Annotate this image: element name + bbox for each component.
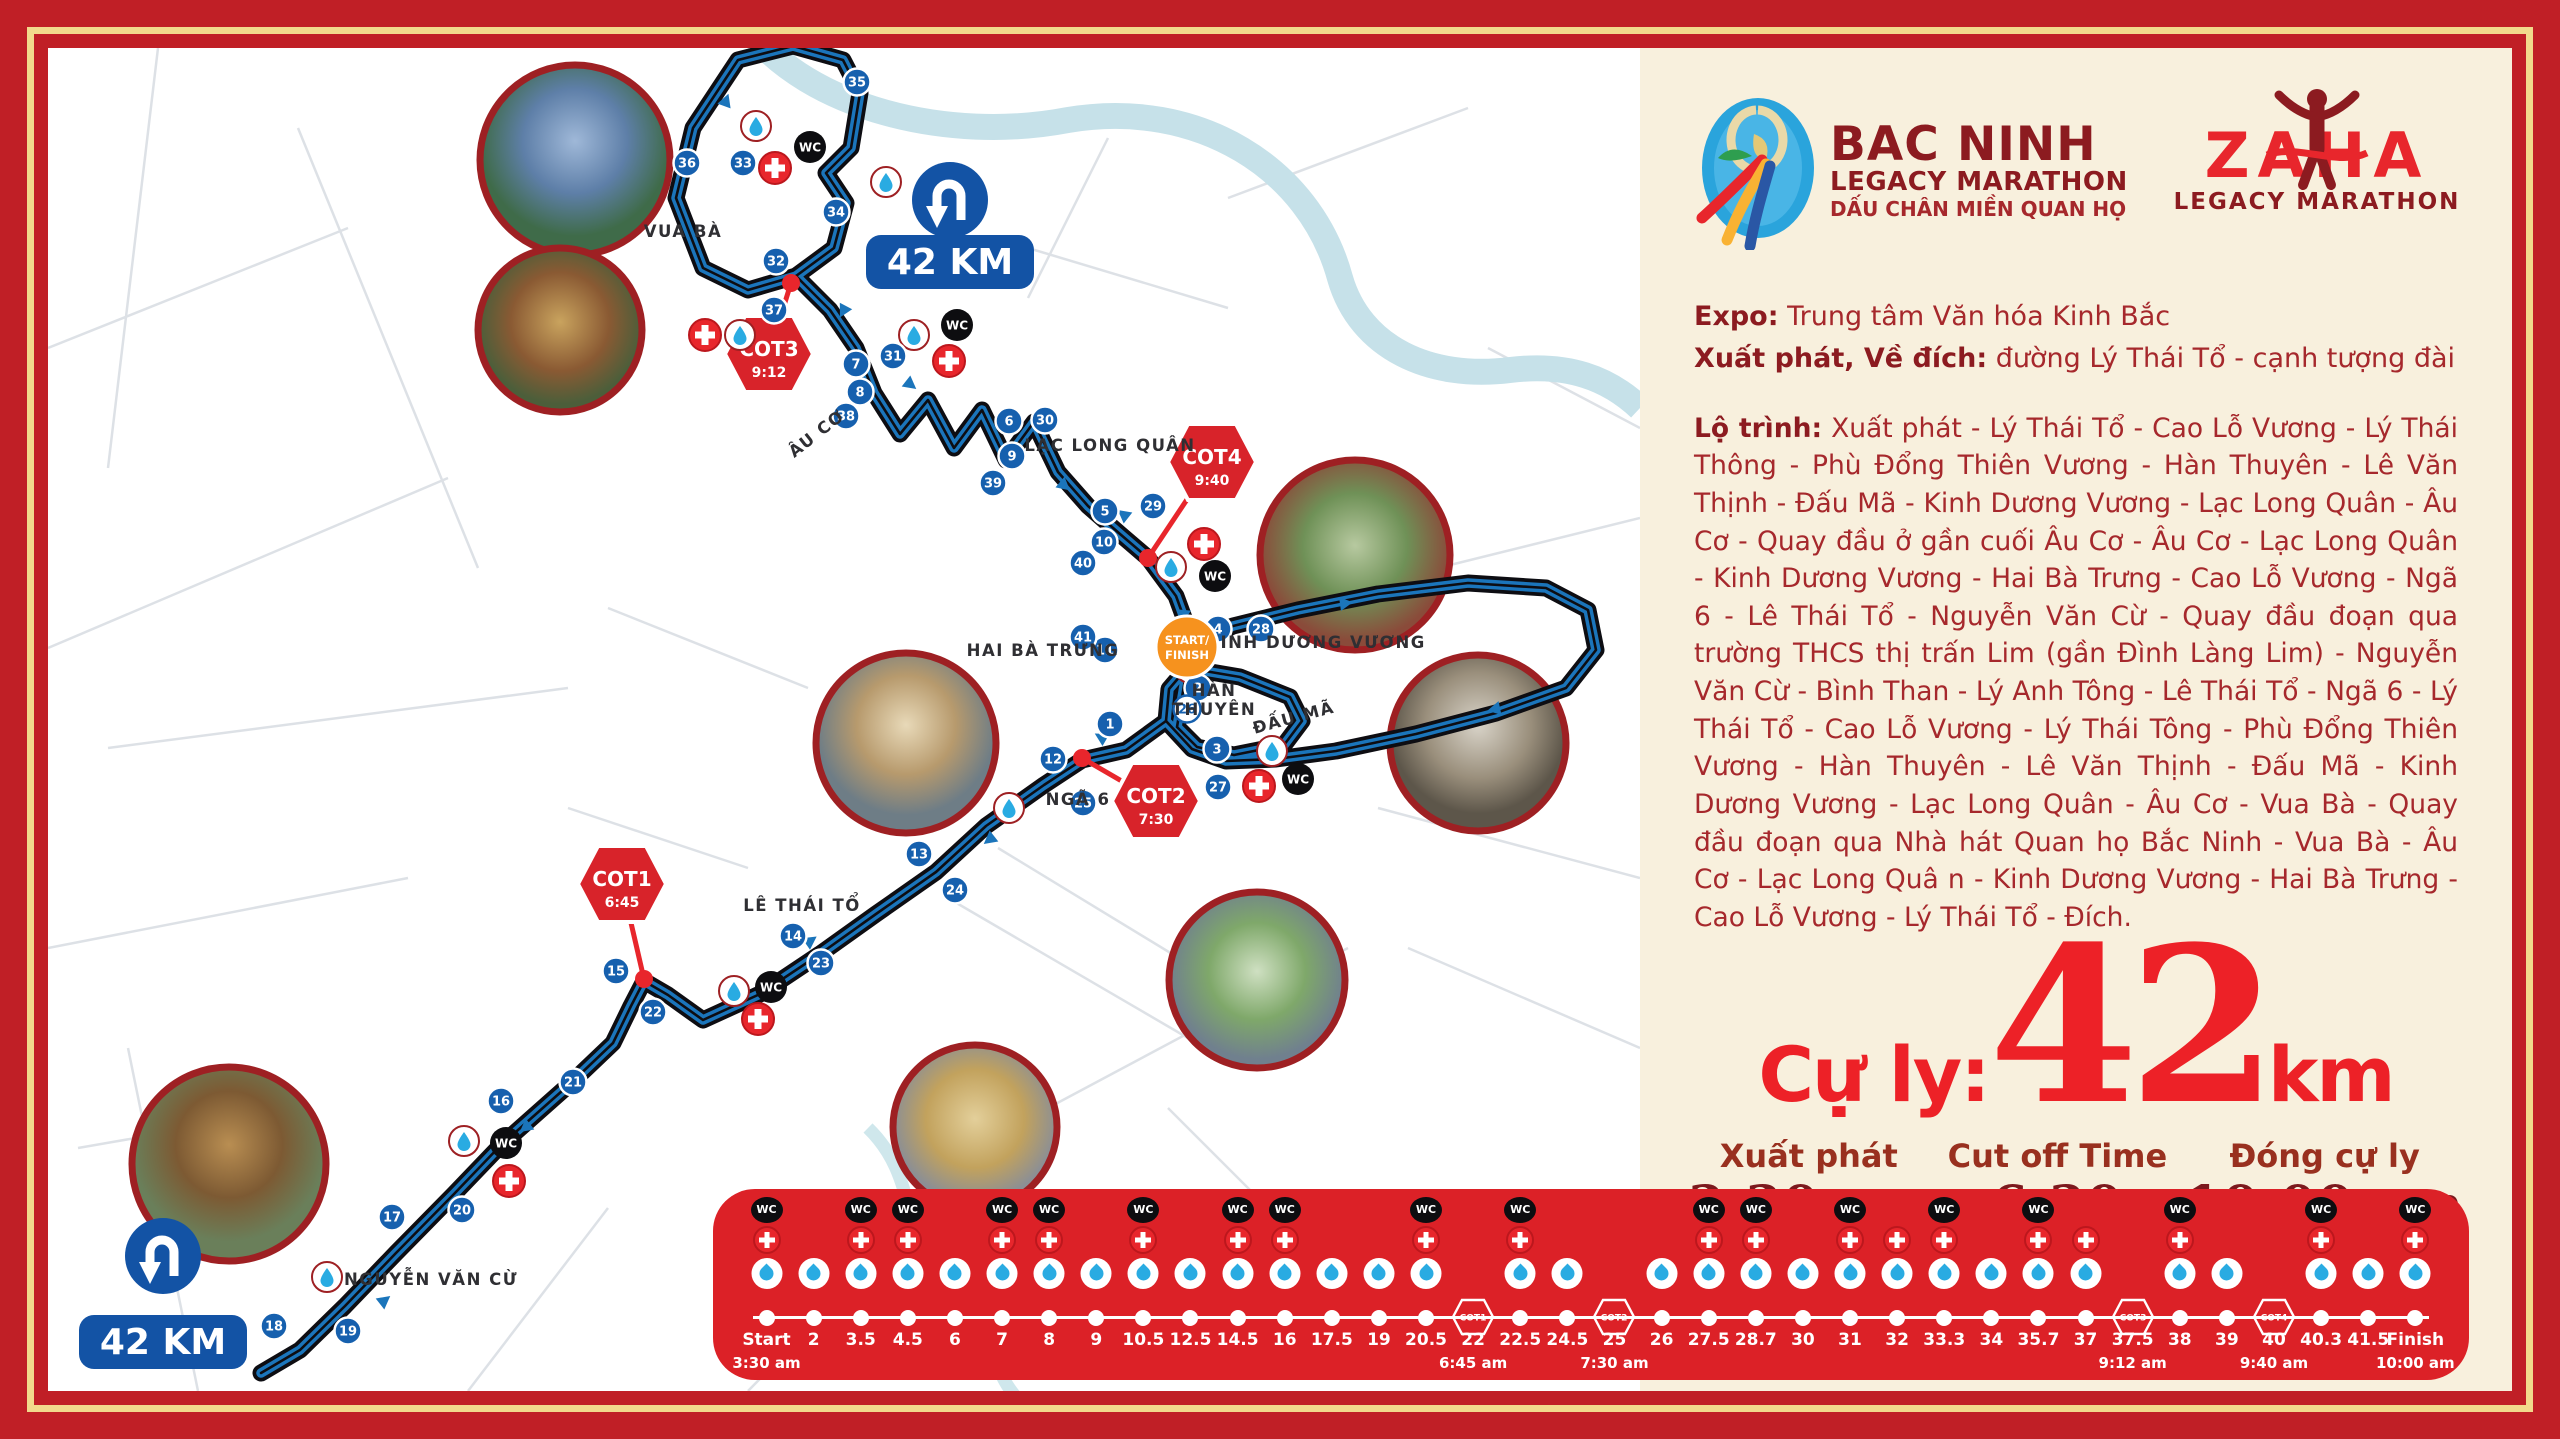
svg-text:COT4: COT4 (2261, 1314, 2288, 1324)
svg-text:WC: WC (1287, 773, 1309, 787)
svg-text:17: 17 (383, 1211, 401, 1226)
svg-text:15: 15 (607, 965, 625, 980)
station-column: WC20.5 (1403, 1189, 1450, 1380)
distance-value: 42 (1989, 942, 2268, 1110)
station-column: WC38 (2156, 1189, 2203, 1380)
svg-text:12: 12 (1044, 753, 1062, 768)
medical-icon (689, 319, 721, 351)
station-dot (1559, 1310, 1575, 1326)
station-column: WC40.3 (2298, 1189, 2345, 1380)
station-dot (1512, 1310, 1528, 1326)
route-description-label: Lộ trình: (1694, 413, 1822, 444)
schedule-label: Đóng cự ly (2185, 1137, 2464, 1175)
station-column: 39 (2203, 1189, 2250, 1380)
start-finish-line: Xuất phát, Về đích: đường Lý Thái Tổ - c… (1694, 338, 2458, 380)
water-icon (2023, 1258, 2054, 1289)
station-column: WCFinish10:00 am (2392, 1189, 2439, 1380)
wc-icon: WC (1269, 1197, 1301, 1223)
water-icon (2070, 1258, 2101, 1289)
street-label: KINH DƯƠNG VƯƠNG (1206, 633, 1426, 652)
timeline-stations: WCStart3:30 am2WC3.5WC4.56WC7WC89WC10.51… (713, 1189, 2469, 1380)
water-icon (1835, 1258, 1866, 1289)
wc-icon: WC (794, 131, 826, 163)
route-description-text: Xuất phát - Lý Thái Tổ - Cao Lỗ Vương - … (1694, 413, 2458, 933)
bac-ninh-subtitle: LEGACY MARATHON (1830, 169, 2128, 196)
medical-icon (2072, 1226, 2100, 1254)
street-label: LẠC LONG QUÂN (1024, 436, 1195, 455)
waypoint-marker: 5 (1092, 498, 1119, 525)
station-column: 26 (1638, 1189, 1685, 1380)
svg-text:WC: WC (1204, 570, 1226, 584)
station-dot (1748, 1310, 1764, 1326)
wc-icon: WC (2022, 1197, 2054, 1223)
medical-icon (988, 1226, 1016, 1254)
waypoint-marker: 30 (1032, 407, 1059, 434)
photo-temple-gate (478, 248, 642, 412)
station-column: WC33.3 (1921, 1189, 1968, 1380)
medical-icon (1883, 1226, 1911, 1254)
medical-icon (759, 152, 791, 184)
wc-icon: WC (755, 971, 787, 1003)
wc-icon: WC (1834, 1197, 1866, 1223)
wc-icon: WC (986, 1197, 1018, 1223)
waypoint-marker: 21 (560, 1069, 587, 1096)
station-column: WC10.5 (1120, 1189, 1167, 1380)
svg-text:9: 9 (1007, 450, 1016, 465)
station-column: COT1226:45 am (1450, 1189, 1497, 1380)
station-dot (1230, 1310, 1246, 1326)
water-icon (1411, 1258, 1442, 1289)
bac-ninh-logo-text: BAC NINH LEGACY MARATHON DẤU CHÂN MIỀN Q… (1830, 120, 2128, 221)
street-label: VUA BÀ (644, 222, 723, 241)
station-dot (806, 1310, 822, 1326)
water-icon (987, 1258, 1018, 1289)
km-badge: 42 KM (866, 235, 1034, 289)
station-dot (994, 1310, 1010, 1326)
wc-icon: WC (1282, 763, 1314, 795)
svg-text:7: 7 (851, 358, 860, 373)
station-column: WC28.7 (1732, 1189, 1779, 1380)
water-icon (751, 1258, 782, 1289)
photo-boulevard (1260, 460, 1450, 650)
cot-sign: COT27:30 (1112, 763, 1200, 839)
svg-text:6: 6 (1004, 415, 1013, 430)
waypoint-marker: 1 (1097, 711, 1124, 738)
event-info: Expo: Trung tâm Văn hóa Kinh Bắc Xuất ph… (1640, 250, 2512, 380)
svg-text:27: 27 (1209, 781, 1227, 796)
svg-text:COT1: COT1 (592, 867, 651, 891)
station-column: WC7 (979, 1189, 1026, 1380)
svg-text:8: 8 (855, 386, 864, 401)
street-label: NGUYỄN VĂN CỪ (344, 1268, 518, 1289)
medical-icon (742, 1003, 774, 1035)
waypoint-marker: 31 (880, 343, 907, 370)
station-column: COT337.59:12 am (2109, 1189, 2156, 1380)
water-icon (1787, 1258, 1818, 1289)
u-turn-icon (912, 162, 988, 238)
svg-text:18: 18 (265, 1320, 283, 1335)
station-column: 2 (790, 1189, 837, 1380)
station-dot (1936, 1310, 1952, 1326)
station-dot (1701, 1310, 1717, 1326)
water-icon (1552, 1258, 1583, 1289)
station-dot (1371, 1310, 1387, 1326)
svg-text:WC: WC (946, 319, 968, 333)
water-icon (719, 976, 749, 1006)
medical-icon (847, 1226, 875, 1254)
medical-icon (1188, 528, 1220, 560)
water-icon (1693, 1258, 1724, 1289)
svg-text:5: 5 (1100, 505, 1109, 520)
water-icon (1976, 1258, 2007, 1289)
station-km: Finish (2375, 1330, 2455, 1350)
waypoint-marker: 18 (261, 1313, 288, 1340)
waypoint-marker: 23 (808, 950, 835, 977)
wc-icon: WC (2399, 1197, 2431, 1223)
medical-icon (1129, 1226, 1157, 1254)
svg-text:20: 20 (453, 1204, 471, 1219)
station-column: 9 (1073, 1189, 1120, 1380)
wc-icon: WC (845, 1197, 877, 1223)
waypoint-marker: 6 (996, 408, 1023, 435)
svg-text:14: 14 (784, 930, 802, 945)
svg-text:WC: WC (760, 981, 782, 995)
medical-icon (753, 1226, 781, 1254)
expo-value: Trung tâm Văn hóa Kinh Bắc (1787, 301, 2170, 332)
station-column: 19 (1355, 1189, 1402, 1380)
schedule-label: Cut off Time (1948, 1137, 2168, 1175)
water-icon (1740, 1258, 1771, 1289)
water-icon (1882, 1258, 1913, 1289)
water-icon (741, 111, 771, 141)
wc-icon: WC (2164, 1197, 2196, 1223)
waypoint-marker: 34 (823, 199, 850, 226)
photo-statue (1390, 655, 1566, 831)
water-icon (1034, 1258, 1065, 1289)
u-turn-icon (125, 1218, 201, 1294)
water-icon (1505, 1258, 1536, 1289)
svg-text:LÊ THÁI TỔ: LÊ THÁI TỔ (743, 893, 861, 915)
start-finish-label: Xuất phát, Về đích: (1694, 343, 1987, 374)
water-icon (1363, 1258, 1394, 1289)
medical-icon (894, 1226, 922, 1254)
waypoint-marker: 39 (980, 470, 1007, 497)
station-column: WC14.5 (1214, 1189, 1261, 1380)
wc-icon: WC (892, 1197, 924, 1223)
water-icon (939, 1258, 970, 1289)
station-column: WC22.5 (1497, 1189, 1544, 1380)
waypoint-marker: 3 (1204, 736, 1231, 763)
wc-icon: WC (1033, 1197, 1065, 1223)
station-column: COT2257:30 am (1591, 1189, 1638, 1380)
svg-text:35: 35 (848, 76, 866, 91)
waypoint-marker: 40 (1070, 550, 1097, 577)
station-column: 41.5 (2345, 1189, 2392, 1380)
svg-text:COT2: COT2 (1126, 784, 1185, 808)
station-dot (1418, 1310, 1434, 1326)
water-icon (994, 793, 1024, 823)
bac-ninh-logo-icon (1692, 90, 1820, 250)
svg-text:13: 13 (910, 848, 928, 863)
water-icon (845, 1258, 876, 1289)
svg-text:COT1: COT1 (1460, 1314, 1487, 1324)
station-dot (2407, 1310, 2423, 1326)
water-icon (892, 1258, 923, 1289)
station-column: WC27.5 (1685, 1189, 1732, 1380)
svg-text:7:30: 7:30 (1139, 812, 1174, 828)
medical-icon (1506, 1226, 1534, 1254)
medical-icon (1271, 1226, 1299, 1254)
svg-text:42 KM: 42 KM (100, 1322, 226, 1363)
medical-icon (1035, 1226, 1063, 1254)
medical-icon (1742, 1226, 1770, 1254)
station-dot (1041, 1310, 1057, 1326)
station-column: WC16 (1261, 1189, 1308, 1380)
waypoint-marker: 8 (847, 379, 874, 406)
station-column: WC35.7 (2015, 1189, 2062, 1380)
station-column: WCStart3:30 am (743, 1189, 790, 1380)
svg-text:VUA BÀ: VUA BÀ (644, 222, 723, 241)
waypoint-marker: 36 (674, 150, 701, 177)
svg-text:WC: WC (495, 1137, 517, 1151)
svg-text:NGUYỄN VĂN CỪ: NGUYỄN VĂN CỪ (344, 1268, 518, 1289)
svg-text:COT2: COT2 (1601, 1314, 1628, 1324)
wc-icon: WC (941, 309, 973, 341)
svg-text:37: 37 (765, 304, 783, 319)
station-dot (2078, 1310, 2094, 1326)
waypoint-marker: 33 (730, 150, 757, 177)
km-badge: 42 KM (79, 1315, 247, 1369)
schedule-label: Xuất phát (1688, 1137, 1930, 1175)
waypoint-marker: 29 (1140, 493, 1167, 520)
water-icon (2211, 1258, 2242, 1289)
svg-text:LẠC LONG QUÂN: LẠC LONG QUÂN (1024, 436, 1195, 455)
station-dot (1088, 1310, 1104, 1326)
wc-icon: WC (1127, 1197, 1159, 1223)
svg-text:19: 19 (339, 1325, 357, 1340)
station-dot (2030, 1310, 2046, 1326)
street-label: LÊ THÁI TỔ (743, 893, 861, 915)
runner-icon (2257, 77, 2377, 197)
station-dot (1795, 1310, 1811, 1326)
photo-stadium (480, 65, 670, 255)
svg-text:NGÃ 6: NGÃ 6 (1046, 790, 1111, 809)
svg-text:16: 16 (492, 1095, 510, 1110)
station-dot (2313, 1310, 2329, 1326)
station-column: WC8 (1026, 1189, 1073, 1380)
station-dot (947, 1310, 963, 1326)
water-icon (1646, 1258, 1677, 1289)
water-icon (449, 1126, 479, 1156)
water-icon (2353, 1258, 2384, 1289)
medical-icon (2024, 1226, 2052, 1254)
wc-icon: WC (2305, 1197, 2337, 1223)
logo-row: BAC NINH LEGACY MARATHON DẤU CHÂN MIỀN Q… (1640, 48, 2512, 250)
svg-text:24: 24 (946, 884, 964, 899)
station-column: 30 (1779, 1189, 1826, 1380)
water-icon (2164, 1258, 2195, 1289)
station-column: 24.5 (1544, 1189, 1591, 1380)
expo-line: Expo: Trung tâm Văn hóa Kinh Bắc (1694, 296, 2458, 338)
waypoint-marker: 35 (844, 69, 871, 96)
wc-icon: WC (1199, 560, 1231, 592)
svg-text:40: 40 (1074, 557, 1092, 572)
svg-text:36: 36 (678, 157, 696, 172)
street-label: ÂU CƠ (785, 406, 848, 461)
svg-text:3: 3 (1212, 743, 1221, 758)
water-icon (899, 320, 929, 350)
distance-label: Cự ly: (1758, 1030, 1988, 1119)
waypoint-marker: 17 (379, 1204, 406, 1231)
wc-icon: WC (1504, 1197, 1536, 1223)
svg-text:9:40: 9:40 (1195, 473, 1230, 489)
svg-text:FINISH: FINISH (1165, 648, 1209, 662)
photo-monument (893, 1045, 1057, 1209)
photo-roundabout (1169, 892, 1345, 1068)
waypoint-marker: 14 (780, 923, 807, 950)
medical-icon (933, 345, 965, 377)
waypoint-marker: 37 (761, 297, 788, 324)
water-icon (1222, 1258, 1253, 1289)
water-icon (1316, 1258, 1347, 1289)
svg-text:10: 10 (1095, 536, 1113, 551)
station-dot (1324, 1310, 1340, 1326)
waypoint-marker: 32 (763, 248, 790, 275)
street-label: HAI BÀ TRƯNG (967, 641, 1120, 660)
station-column: 32 (1874, 1189, 1921, 1380)
distance-display: Cự ly: 42 km (1640, 942, 2512, 1119)
station-dot (1135, 1310, 1151, 1326)
water-icon (2400, 1258, 2431, 1289)
svg-text:22: 22 (644, 1006, 662, 1021)
waypoint-marker: 12 (1040, 746, 1067, 773)
svg-text:29: 29 (1144, 500, 1162, 515)
svg-text:39: 39 (984, 477, 1002, 492)
station-column: WC3.5 (837, 1189, 884, 1380)
station-dot (2172, 1310, 2188, 1326)
bac-ninh-title: BAC NINH (1830, 120, 2128, 169)
waypoint-marker: 13 (906, 841, 933, 868)
water-icon (1269, 1258, 1300, 1289)
route-description: Lộ trình: Xuất phát - Lý Thái Tổ - Cao L… (1640, 380, 2512, 937)
waypoint-marker: 15 (603, 958, 630, 985)
cot-route-dot (1139, 549, 1157, 567)
svg-text:ÂU CƠ: ÂU CƠ (785, 406, 848, 461)
station-dot (1842, 1310, 1858, 1326)
svg-text:31: 31 (884, 350, 902, 365)
svg-text:HAI BÀ TRƯNG: HAI BÀ TRƯNG (967, 641, 1120, 660)
water-icon (1128, 1258, 1159, 1289)
photo-clock-tower (816, 653, 996, 833)
waypoint-marker: 24 (942, 877, 969, 904)
svg-text:34: 34 (827, 206, 845, 221)
medical-icon (1695, 1226, 1723, 1254)
water-icon (1175, 1258, 1206, 1289)
station-dot (1654, 1310, 1670, 1326)
waypoint-marker: 22 (640, 999, 667, 1026)
expo-label: Expo: (1694, 301, 1779, 332)
svg-text:23: 23 (812, 957, 830, 972)
water-icon (1156, 552, 1186, 582)
waypoint-marker: 19 (335, 1318, 362, 1345)
station-column: 17.5 (1308, 1189, 1355, 1380)
water-icon (1257, 736, 1287, 766)
svg-text:21: 21 (564, 1076, 582, 1091)
waypoint-marker: 20 (449, 1197, 476, 1224)
waypoint-marker: 10 (1091, 529, 1118, 556)
street-label: NGÃ 6 (1046, 790, 1111, 809)
zaha-logo: ZAHA LEGACY MARATHON (2172, 125, 2462, 215)
station-dot (1983, 1310, 1999, 1326)
svg-text:HÀN: HÀN (1192, 681, 1237, 700)
waypoint-marker: 27 (1205, 774, 1232, 801)
station-column: WC4.5 (884, 1189, 931, 1380)
svg-text:START/: START/ (1165, 633, 1210, 647)
wc-icon: WC (751, 1197, 783, 1223)
km-waypoints: 1234567891011121314151617181920212223242… (261, 69, 1275, 1345)
distance-unit: km (2268, 1030, 2394, 1119)
waypoint-marker: 16 (488, 1088, 515, 1115)
medical-icon (2166, 1226, 2194, 1254)
cot-route-dot (635, 970, 653, 988)
water-icon (1929, 1258, 1960, 1289)
station-dot (1277, 1310, 1293, 1326)
svg-text:KINH DƯƠNG VƯƠNG: KINH DƯƠNG VƯƠNG (1206, 633, 1426, 652)
station-column: 12.5 (1167, 1189, 1214, 1380)
bac-ninh-logo: BAC NINH LEGACY MARATHON DẤU CHÂN MIỀN Q… (1692, 90, 2128, 250)
wc-icon: WC (1693, 1197, 1725, 1223)
station-column: 37 (2062, 1189, 2109, 1380)
wc-icon: WC (1222, 1197, 1254, 1223)
medical-icon (1224, 1226, 1252, 1254)
medical-icon (1836, 1226, 1864, 1254)
landmark-photos (132, 65, 1566, 1261)
svg-text:1: 1 (1105, 718, 1114, 733)
waypoint-marker: 7 (843, 351, 870, 378)
water-icon (2306, 1258, 2337, 1289)
aid-station-timeline: WCStart3:30 am2WC3.5WC4.56WC7WC89WC10.51… (713, 1189, 2469, 1380)
station-column: WC31 (1827, 1189, 1874, 1380)
station-dot (2360, 1310, 2376, 1326)
medical-icon (1243, 770, 1275, 802)
water-icon (312, 1262, 342, 1292)
station-dot (2219, 1310, 2235, 1326)
bac-ninh-tagline: DẤU CHÂN MIỀN QUAN HỌ (1830, 199, 2128, 220)
svg-text:30: 30 (1036, 414, 1054, 429)
station-dot (1889, 1310, 1905, 1326)
water-icon (871, 167, 901, 197)
medical-icon (1930, 1226, 1958, 1254)
marathon-route-poster: COT16:45COT27:30COT39:12COT49:40 WCWCWCW… (0, 0, 2560, 1439)
svg-text:6:45: 6:45 (605, 895, 640, 911)
station-dot (1182, 1310, 1198, 1326)
cot-route-dot (782, 274, 800, 292)
water-icon (725, 320, 755, 350)
medical-icon (2401, 1226, 2429, 1254)
svg-text:32: 32 (767, 255, 785, 270)
water-icon (1081, 1258, 1112, 1289)
svg-text:COT3: COT3 (2119, 1314, 2146, 1324)
svg-text:42 KM: 42 KM (887, 242, 1013, 283)
water-icon (798, 1258, 829, 1289)
station-column: COT4409:40 am (2251, 1189, 2298, 1380)
station-column: 34 (1968, 1189, 2015, 1380)
svg-text:WC: WC (799, 141, 821, 155)
wc-icon: WC (1410, 1197, 1442, 1223)
svg-text:33: 33 (734, 157, 752, 172)
cot-sign: COT16:45 (578, 846, 666, 922)
station-dot (900, 1310, 916, 1326)
